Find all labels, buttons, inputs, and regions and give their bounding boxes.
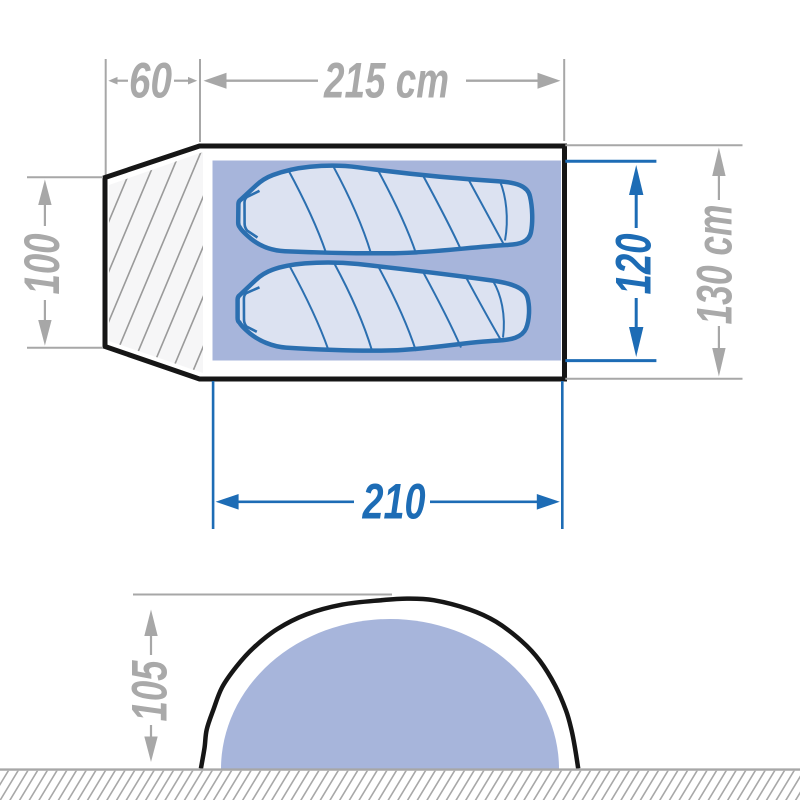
svg-text:105: 105 [122,660,178,722]
svg-text:120: 120 [605,233,661,294]
svg-text:215 cm: 215 cm [323,53,449,109]
svg-text:100: 100 [14,233,70,294]
svg-text:60: 60 [129,53,172,109]
svg-text:210: 210 [362,474,426,530]
svg-text:130 cm: 130 cm [687,205,743,325]
